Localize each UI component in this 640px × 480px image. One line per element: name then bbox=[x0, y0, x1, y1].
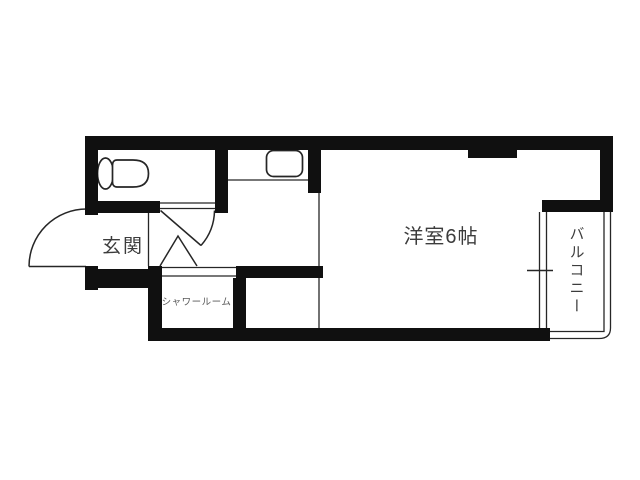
wall-kitchen-pillar bbox=[308, 150, 321, 193]
toilet-icon bbox=[113, 160, 149, 187]
floor-plan: 玄関 洋室6帖 シャワールーム バルコニー bbox=[0, 0, 640, 480]
entrance-door-swing-icon bbox=[29, 209, 87, 267]
toilet-door-swing-icon bbox=[201, 211, 215, 246]
wall-entrance-bottom bbox=[85, 269, 158, 288]
wall-toilet-bottom bbox=[85, 201, 160, 213]
wall-bottom bbox=[148, 328, 550, 341]
wall-top-notch bbox=[468, 150, 517, 158]
wall-shower-right bbox=[233, 278, 246, 333]
shower-room-label: シャワールーム bbox=[159, 296, 234, 309]
wall-corridor-bottom bbox=[236, 266, 323, 278]
western-room-label: 洋室6帖 bbox=[389, 224, 493, 249]
wall-top bbox=[85, 136, 613, 150]
kitchen-sink-icon bbox=[267, 151, 303, 177]
folding-door-icon bbox=[160, 236, 197, 266]
wall-right bbox=[600, 136, 613, 212]
wall-toilet-right bbox=[215, 150, 228, 213]
toilet-icon bbox=[98, 158, 114, 189]
entrance-label: 玄関 bbox=[96, 233, 150, 259]
balcony-label: バルコニー bbox=[563, 220, 589, 322]
